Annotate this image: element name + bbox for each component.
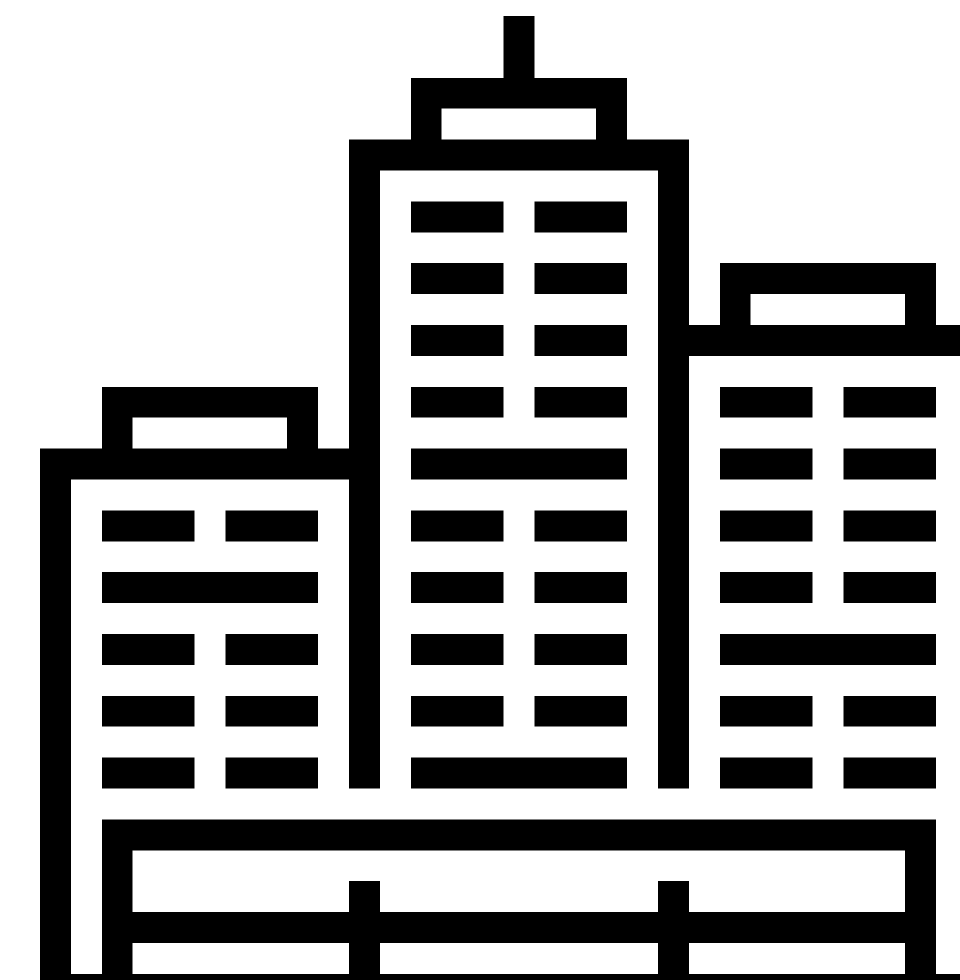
- center-roof-top: [411, 78, 627, 109]
- city-skyline-buildings-icon: [40, 16, 960, 980]
- left-window: [102, 758, 195, 789]
- center-wall-left: [349, 171, 380, 789]
- right-window: [720, 696, 813, 727]
- right-roof-right: [905, 294, 936, 325]
- left-window: [225, 696, 318, 727]
- city-skyline-buildings-svg: [40, 16, 960, 980]
- fence-rail: [102, 912, 936, 943]
- left-roof-left: [102, 418, 133, 449]
- platform-deck: [102, 819, 936, 850]
- center-window: [534, 572, 627, 603]
- center-window: [411, 696, 504, 727]
- right-window: [720, 758, 813, 789]
- ground-bar: [40, 974, 960, 980]
- center-window: [534, 696, 627, 727]
- left-roof-right: [287, 418, 318, 449]
- left-roof-top: [102, 387, 318, 418]
- left-parapet: [40, 449, 349, 480]
- center-window: [534, 263, 627, 294]
- left-window: [225, 758, 318, 789]
- center-window: [411, 634, 504, 665]
- left-window: [102, 510, 195, 541]
- left-window: [102, 634, 195, 665]
- right-window: [720, 449, 813, 480]
- center-window-band: [411, 758, 627, 789]
- right-parapet: [689, 325, 960, 356]
- center-window: [411, 201, 504, 232]
- right-roof-left: [720, 294, 751, 325]
- right-window: [843, 696, 936, 727]
- center-window: [411, 325, 504, 356]
- center-window: [534, 325, 627, 356]
- left-window: [225, 634, 318, 665]
- right-window: [843, 449, 936, 480]
- center-window-band: [411, 449, 627, 480]
- center-window: [534, 634, 627, 665]
- right-window: [843, 758, 936, 789]
- center-parapet: [349, 140, 689, 171]
- center-window: [411, 263, 504, 294]
- right-window: [843, 510, 936, 541]
- center-window: [411, 572, 504, 603]
- right-window: [720, 510, 813, 541]
- right-window: [720, 572, 813, 603]
- left-window: [102, 696, 195, 727]
- left-wall-outer: [40, 480, 71, 980]
- left-window: [225, 510, 318, 541]
- right-roof-top: [720, 263, 936, 294]
- center-antenna: [504, 16, 535, 78]
- left-window-band: [102, 572, 318, 603]
- center-window: [534, 510, 627, 541]
- center-roof-left: [411, 109, 442, 140]
- right-window: [720, 387, 813, 418]
- center-window: [411, 387, 504, 418]
- right-window-band: [720, 634, 936, 665]
- center-window: [534, 387, 627, 418]
- right-window: [843, 387, 936, 418]
- right-window: [843, 572, 936, 603]
- center-roof-right: [596, 109, 627, 140]
- center-window: [534, 201, 627, 232]
- center-wall-right: [658, 171, 689, 789]
- center-window: [411, 510, 504, 541]
